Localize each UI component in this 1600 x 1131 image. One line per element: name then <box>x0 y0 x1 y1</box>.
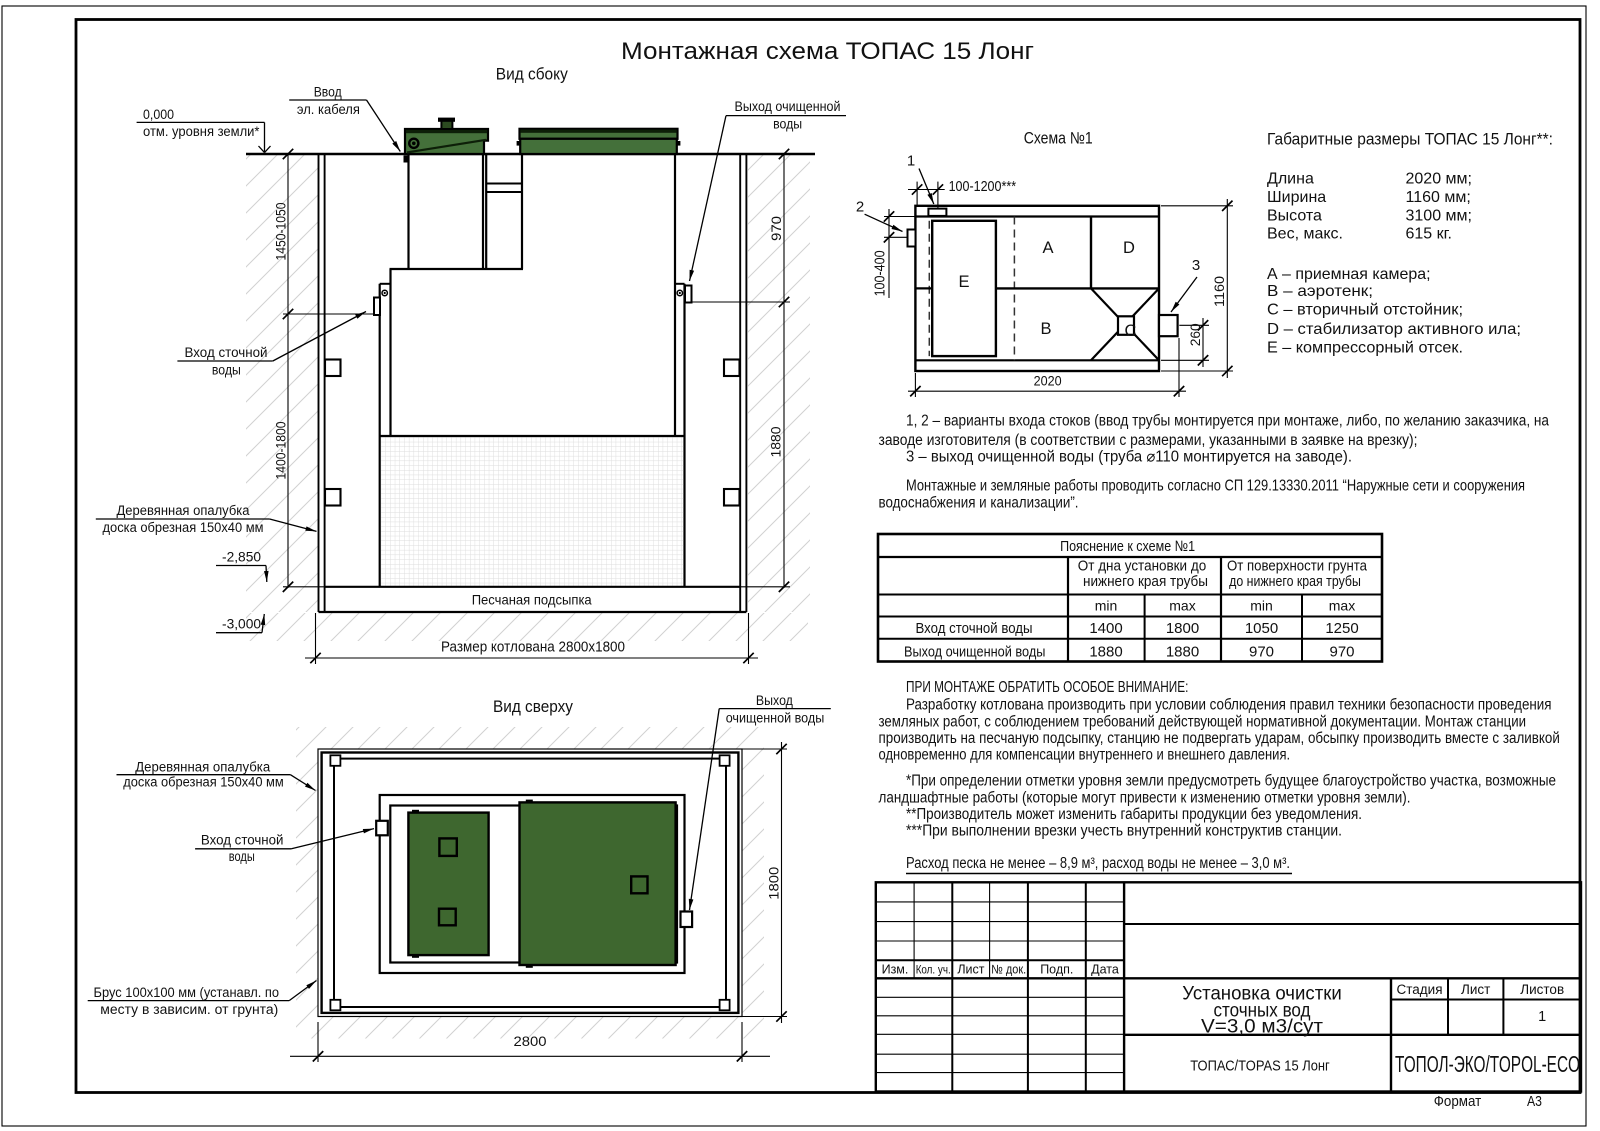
svg-text:**Производитель может изменить: **Производитель может изменить габариты … <box>906 806 1362 823</box>
svg-text:Расход песка не менее – 8,9 м³: Расход песка не менее – 8,9 м³, расход в… <box>906 855 1290 872</box>
svg-text:1250: 1250 <box>1325 620 1358 637</box>
svg-text:C: C <box>1125 322 1137 340</box>
svg-text:ТОПОЛ-ЭКО/TOPOL-ECO: ТОПОЛ-ЭКО/TOPOL-ECO <box>1395 1051 1580 1077</box>
svg-text:ТОПАС/TOPAS 15 Лонг: ТОПАС/TOPAS 15 Лонг <box>1190 1059 1330 1075</box>
svg-text:Кол. уч.: Кол. уч. <box>916 963 951 977</box>
svg-text:1800: 1800 <box>765 866 781 899</box>
svg-text:3 – выход очищенной воды (труб: 3 – выход очищенной воды (труба ⌀110 мон… <box>906 449 1352 466</box>
svg-text:-2,850: -2,850 <box>222 549 261 565</box>
svg-text:нижнего края трубы: нижнего края трубы <box>1083 573 1208 590</box>
svg-text:Лист: Лист <box>1461 982 1490 997</box>
svg-text:ландшафтные работы (которые мо: ландшафтные работы (которые могут привес… <box>879 790 1411 807</box>
svg-text:Монтажные и земляные работы пр: Монтажные и земляные работы проводить со… <box>906 478 1525 495</box>
svg-text:100-1200***: 100-1200*** <box>949 178 1017 195</box>
svg-text:Дата: Дата <box>1091 963 1119 977</box>
svg-text:Деревянная опалубка: Деревянная опалубка <box>117 503 250 518</box>
svg-text:Ширина: Ширина <box>1267 189 1326 206</box>
svg-text:min: min <box>1250 598 1273 614</box>
svg-text:Габаритные размеры ТОПАС 15 Ло: Габаритные размеры ТОПАС 15 Лонг**: <box>1267 130 1553 149</box>
svg-text:Вес, макс.: Вес, макс. <box>1267 226 1343 243</box>
svg-text:0,000: 0,000 <box>143 106 174 122</box>
svg-text:Выход: Выход <box>756 692 793 708</box>
svg-text:260: 260 <box>1187 323 1203 346</box>
svg-text:Ввод: Ввод <box>314 83 342 99</box>
svg-text:Стадия: Стадия <box>1396 982 1442 997</box>
svg-text:доска обрезная 150х40 мм: доска обрезная 150х40 мм <box>103 520 264 535</box>
svg-text:Вид сбоку: Вид сбоку <box>496 65 568 84</box>
svg-text:Разработку котлована производи: Разработку котлована производить при усл… <box>906 696 1552 713</box>
svg-text:100-400: 100-400 <box>872 250 888 296</box>
svg-text:1050: 1050 <box>1245 620 1278 637</box>
svg-text:Пояснение к схеме №1: Пояснение к схеме №1 <box>1060 538 1195 555</box>
svg-text:Изм.: Изм. <box>882 963 909 977</box>
svg-text:Листов: Листов <box>1520 982 1564 997</box>
svg-text:воды: воды <box>773 116 802 132</box>
svg-text:1, 2 – варианты входа стоков: 1, 2 – варианты входа стоков (ввод трубы… <box>906 412 1549 429</box>
svg-text:***При выполнении врезки учест: ***При выполнении врезки учесть внутренн… <box>906 823 1342 840</box>
svg-text:1400-1800: 1400-1800 <box>273 421 289 479</box>
svg-text:2800: 2800 <box>514 1033 547 1049</box>
svg-text:min: min <box>1095 598 1118 614</box>
svg-text:970: 970 <box>1329 644 1354 661</box>
svg-text:1160 мм;: 1160 мм; <box>1406 189 1471 206</box>
svg-text:водоснабжения и канализации”.: водоснабжения и канализации”. <box>879 494 1079 511</box>
svg-text:Размер котлована 2800х1800: Размер котлована 2800х1800 <box>441 640 625 656</box>
svg-text:Длина: Длина <box>1267 171 1314 188</box>
svg-text:Лист: Лист <box>957 963 984 977</box>
svg-text:Деревянная опалубка: Деревянная опалубка <box>135 760 270 775</box>
svg-text:Формат: Формат <box>1434 1094 1482 1110</box>
svg-text:B – аэротенк;: B – аэротенк; <box>1267 283 1373 300</box>
svg-text:Подп.: Подп. <box>1040 963 1073 977</box>
svg-text:C – вторичный отстойник;: C – вторичный отстойник; <box>1267 302 1463 319</box>
svg-text:-3,000: -3,000 <box>222 616 261 632</box>
svg-text:ПРИ МОНТАЖЕ ОБРАТИТЬ ОСОБОЕ ВН: ПРИ МОНТАЖЕ ОБРАТИТЬ ОСОБОЕ ВНИМАНИЕ: <box>906 679 1188 696</box>
svg-text:970: 970 <box>1249 644 1274 661</box>
svg-text:A: A <box>1042 239 1053 257</box>
svg-text:производить на песчаную подсып: производить на песчаную подсыпку, станци… <box>879 730 1560 747</box>
svg-text:доска обрезная 150х40 мм: доска обрезная 150х40 мм <box>123 775 284 790</box>
svg-text:B: B <box>1040 320 1051 338</box>
svg-text:1450-1050: 1450-1050 <box>273 202 289 260</box>
svg-text:месту в зависим. от грунта): месту в зависим. от грунта) <box>100 1002 278 1017</box>
svg-text:D: D <box>1123 239 1135 257</box>
svg-text:Вход сточной воды: Вход сточной воды <box>916 620 1033 637</box>
svg-text:1880: 1880 <box>1166 644 1199 661</box>
svg-text:А3: А3 <box>1527 1094 1542 1110</box>
svg-text:V=3,0 м3/сут: V=3,0 м3/сут <box>1201 1017 1323 1038</box>
svg-text:1400: 1400 <box>1089 620 1122 637</box>
svg-text:E – компрессорный отсек.: E – компрессорный отсек. <box>1267 339 1463 356</box>
svg-text:2: 2 <box>856 199 864 216</box>
svg-text:3100 мм;: 3100 мм; <box>1406 207 1472 224</box>
svg-text:970: 970 <box>768 216 784 241</box>
svg-text:1880: 1880 <box>1089 644 1122 661</box>
svg-text:1: 1 <box>1538 1009 1546 1025</box>
svg-text:E: E <box>958 273 969 291</box>
svg-text:до нижнего края трубы: до нижнего края трубы <box>1229 573 1361 590</box>
svg-text:2020 мм;: 2020 мм; <box>1406 171 1472 188</box>
svg-text:615 кг.: 615 кг. <box>1406 226 1452 243</box>
svg-text:воды: воды <box>229 848 255 864</box>
svg-text:воды: воды <box>212 362 241 378</box>
svg-text:3: 3 <box>1192 257 1200 274</box>
svg-text:1160: 1160 <box>1211 276 1227 307</box>
svg-text:земляных работ, с соблюдением: земляных работ, с соблюдением требований… <box>879 713 1527 730</box>
svg-text:№ док.: № док. <box>991 963 1026 977</box>
svg-text:Выход очищенной воды: Выход очищенной воды <box>904 644 1046 661</box>
svg-text:Высота: Высота <box>1267 207 1322 224</box>
svg-text:1800: 1800 <box>1166 620 1199 637</box>
svg-text:2020: 2020 <box>1034 372 1062 388</box>
svg-text:max: max <box>1169 598 1195 614</box>
svg-text:Вход сточной: Вход сточной <box>201 832 284 848</box>
svg-text:одновременно для компенсации в: одновременно для компенсации внутреннего… <box>879 746 1291 763</box>
svg-text:Монтажная схема ТОПАС 15 Лонг: Монтажная схема ТОПАС 15 Лонг <box>621 38 1034 65</box>
svg-text:Выход очищенной: Выход очищенной <box>735 98 841 114</box>
svg-text:отм. уровня земли*: отм. уровня земли* <box>143 124 260 139</box>
svg-text:Вход сточной: Вход сточной <box>185 344 268 360</box>
svg-text:Брус 100х100 мм (устанавл. по: Брус 100х100 мм (устанавл. по <box>94 985 280 1000</box>
svg-text:1: 1 <box>907 152 915 169</box>
svg-text:Песчаная подсыпка: Песчаная подсыпка <box>472 591 592 607</box>
svg-text:D – стабилизатор активного ила: D – стабилизатор активного ила; <box>1267 321 1521 338</box>
svg-text:заводе изготовителя (в соответ: заводе изготовителя (в соответствии с ра… <box>879 432 1418 449</box>
svg-text:1880: 1880 <box>768 426 784 457</box>
svg-text:очищенной воды: очищенной воды <box>726 709 825 725</box>
svg-text:А – приемная камера;: А – приемная камера; <box>1267 266 1431 283</box>
svg-text:Вид сверху: Вид сверху <box>493 697 573 716</box>
svg-text:max: max <box>1329 598 1355 614</box>
svg-text:*При определении отметки уровн: *При определении отметки уровня земли пр… <box>906 773 1556 790</box>
svg-text:эл. кабеля: эл. кабеля <box>297 101 360 117</box>
svg-text:Схема №1: Схема №1 <box>1024 130 1093 148</box>
